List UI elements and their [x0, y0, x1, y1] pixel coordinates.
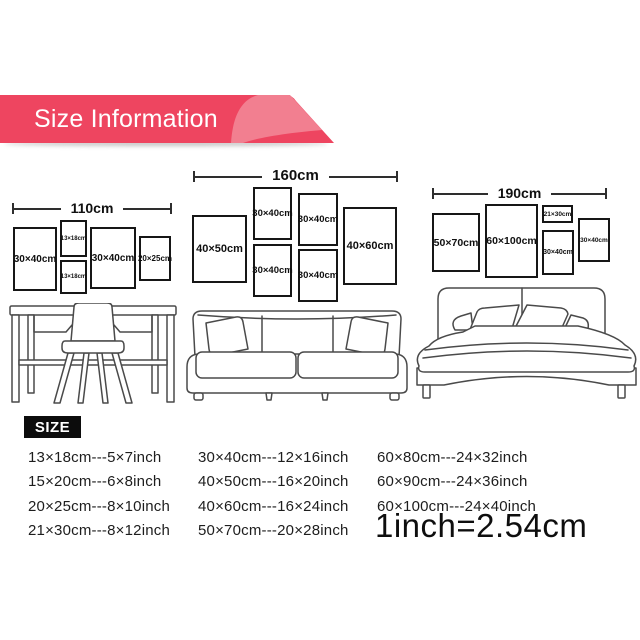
size-row: 40×50cm---16×20inch: [198, 470, 349, 494]
frame-size-box: 30×40cm: [253, 244, 292, 297]
size-row: 60×90cm---24×36inch: [377, 470, 536, 494]
size-table-column-2: 30×40cm---12×16inch 40×50cm---16×20inch …: [198, 446, 349, 544]
frame-size-box: 21×30cm: [542, 205, 573, 223]
dimension-rule: [195, 176, 262, 178]
dimension-rule: [123, 208, 170, 210]
sofa-illustration: [182, 303, 412, 403]
dimension-tick-icon: [605, 188, 607, 199]
page-title: Size Information: [34, 97, 218, 141]
dimension-line-190cm: 190cm: [432, 188, 607, 199]
frame-size-box: 50×70cm: [432, 213, 480, 272]
size-row: 13×18cm---5×7inch: [28, 446, 170, 470]
dimension-rule: [551, 193, 605, 195]
dimension-label: 110cm: [61, 200, 124, 216]
frame-size-box: 13×18cm: [60, 260, 87, 294]
frame-size-box: 40×50cm: [192, 215, 247, 283]
frame-size-box: 30×40cm: [542, 230, 574, 275]
dimension-line-160cm: 160cm: [193, 171, 398, 182]
size-row: 21×30cm---8×12inch: [28, 519, 170, 543]
dimension-tick-icon: [170, 203, 172, 214]
frame-size-box: 30×40cm: [253, 187, 292, 240]
dimension-rule: [14, 208, 61, 210]
desk-chair-illustration: [8, 303, 178, 405]
size-row: 40×60cm---16×24inch: [198, 495, 349, 519]
frame-size-box: 30×40cm: [298, 193, 338, 246]
dimension-tick-icon: [396, 171, 398, 182]
inch-conversion: 1inch=2.54cm: [375, 507, 587, 545]
size-heading: SIZE: [24, 416, 81, 438]
frame-size-box: 30×40cm: [298, 249, 338, 302]
dimension-label: 160cm: [262, 167, 329, 184]
size-row: 50×70cm---20×28inch: [198, 519, 349, 543]
size-row: 60×80cm---24×32inch: [377, 446, 536, 470]
frame-size-box: 13×18cm: [60, 220, 87, 257]
frame-size-box: 60×100cm: [485, 204, 538, 278]
dimension-line-110cm: 110cm: [12, 203, 172, 214]
frame-size-box: 20×25cm: [139, 236, 171, 281]
size-table-column-1: 13×18cm---5×7inch 15×20cm---6×8inch 20×2…: [28, 446, 170, 544]
bed-illustration: [413, 282, 640, 404]
size-information-infographic: Size Information 110cm 30×40cm 13×18cm 1…: [0, 0, 640, 640]
frame-size-box: 30×40cm: [13, 227, 57, 291]
frame-size-box: 30×40cm: [90, 227, 136, 289]
size-row: 30×40cm---12×16inch: [198, 446, 349, 470]
size-row: 15×20cm---6×8inch: [28, 470, 170, 494]
size-row: 20×25cm---8×10inch: [28, 495, 170, 519]
frame-size-box: 30×40cm: [578, 218, 610, 262]
dimension-label: 190cm: [488, 185, 552, 201]
dimension-rule: [329, 176, 396, 178]
dimension-rule: [434, 193, 488, 195]
frame-size-box: 40×60cm: [343, 207, 397, 285]
